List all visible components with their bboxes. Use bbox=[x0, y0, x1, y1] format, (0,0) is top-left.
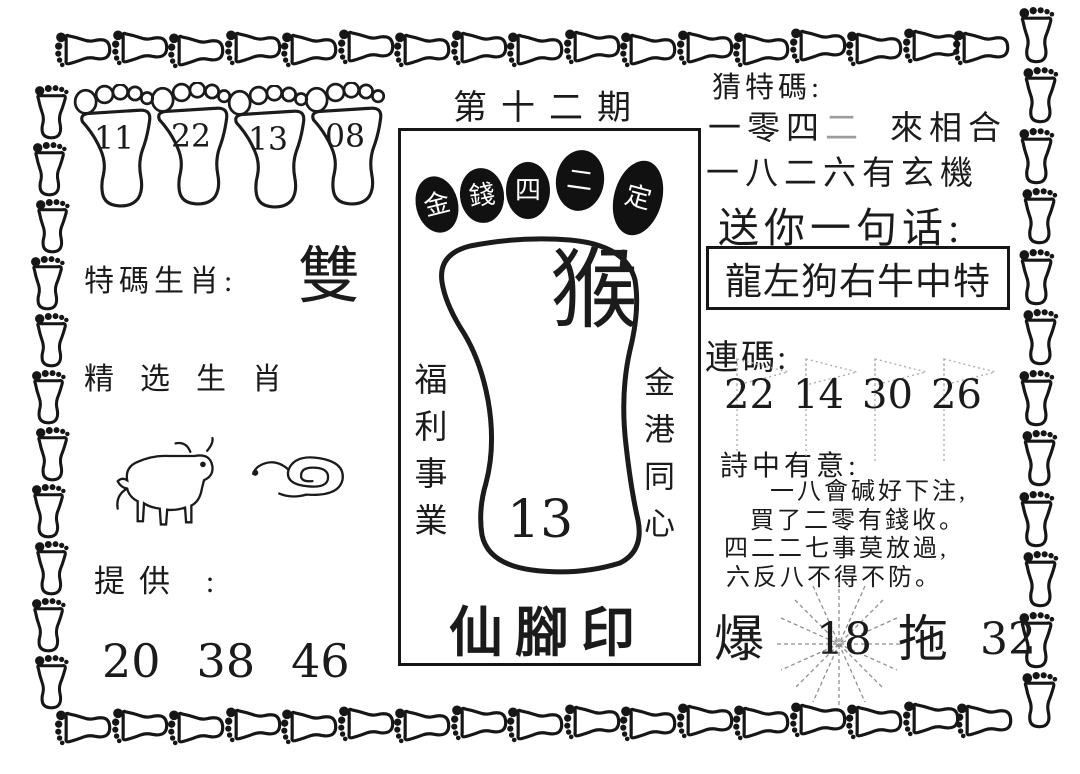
special-zodiac-value: 雙 bbox=[298, 246, 360, 308]
ox-image bbox=[106, 436, 222, 536]
guess-special-label: 猜特碼: bbox=[712, 64, 823, 106]
poem-line: 一八會碱好下注, bbox=[710, 478, 968, 507]
drag-number: 32 bbox=[980, 618, 1036, 662]
burst-label: 爆 bbox=[714, 614, 764, 664]
stamp-toe-char: 錢 bbox=[467, 181, 496, 210]
serial-number: 22 bbox=[724, 372, 793, 418]
serial-number: 14 bbox=[793, 372, 862, 418]
guess-line-1-tail: 來相合 bbox=[890, 111, 1007, 147]
number-footprint: 13 bbox=[226, 85, 310, 211]
guess-line-1-numbers: 一零四 bbox=[708, 111, 825, 147]
drag-label: 拖 bbox=[898, 614, 948, 664]
number-footprint: 11 bbox=[72, 84, 156, 210]
provide-number: 20 bbox=[102, 634, 161, 688]
poem-line: 買了二零有錢收。 bbox=[710, 507, 968, 536]
serial-number: 26 bbox=[931, 372, 1000, 418]
footprint-number: 13 bbox=[248, 122, 288, 158]
footprint-number: 22 bbox=[171, 119, 211, 155]
stamp-toe-char: 金 bbox=[421, 189, 453, 221]
message-value-box: 龍左狗右牛中特 bbox=[706, 246, 1010, 310]
selected-zodiac-label: 精选生肖 bbox=[84, 354, 308, 398]
footprint-number: 08 bbox=[325, 119, 365, 155]
burst-number: 18 bbox=[816, 618, 872, 662]
issue-title: 第十二期 bbox=[398, 80, 700, 129]
guess-line-2: 一八二六有玄機 bbox=[706, 146, 979, 194]
serial-numbers-row: 22 14 30 26 bbox=[724, 372, 1000, 418]
number-footprint: 08 bbox=[303, 82, 387, 208]
footprint-border-bottom bbox=[0, 696, 1080, 752]
provide-number: 46 bbox=[291, 634, 350, 688]
poem-line: 四二二七事莫放過, bbox=[710, 535, 968, 564]
number-footprint: 22 bbox=[149, 82, 233, 208]
stamp-toe-char: 定 bbox=[622, 182, 654, 214]
stamp-zodiac-char: 猴 bbox=[550, 248, 638, 336]
serial-number: 30 bbox=[862, 372, 931, 418]
special-zodiac-label: 特碼生肖: bbox=[84, 256, 237, 300]
guess-line-1-faded-char: 二 bbox=[825, 111, 864, 147]
provide-number: 38 bbox=[197, 634, 256, 688]
provide-label: 提供 : bbox=[94, 556, 228, 601]
footprint-number: 11 bbox=[94, 121, 134, 157]
guess-line-1: 一零四二來相合 bbox=[708, 101, 1007, 149]
stamp-number: 13 bbox=[507, 490, 573, 550]
stamp-right-motto: 金港同心 bbox=[641, 366, 672, 554]
stamp-bottom-title: 仙腳印 bbox=[418, 588, 678, 667]
message-label: 送你一句话: bbox=[718, 194, 964, 254]
stamp-left-motto: 福利事業 bbox=[410, 362, 443, 550]
stamp-toe: 四 bbox=[506, 162, 550, 219]
snake-image bbox=[248, 446, 352, 510]
message-value: 龍左狗右牛中特 bbox=[725, 251, 991, 305]
stamp-toe-char: 二 bbox=[565, 166, 594, 195]
stamp-toe-char: 四 bbox=[515, 178, 541, 204]
footprint-border-top bbox=[0, 24, 1080, 76]
provide-numbers: 20 38 46 bbox=[102, 634, 350, 688]
lottery-tip-sheet: 11 22 13 08 第十二期 特碼生肖: 雙 精选生肖 提供 : 20 3 bbox=[0, 0, 1080, 774]
poem-block: 一八會碱好下注, 買了二零有錢收。 四二二七事莫放過, 六反八不得不防。 bbox=[710, 478, 968, 592]
